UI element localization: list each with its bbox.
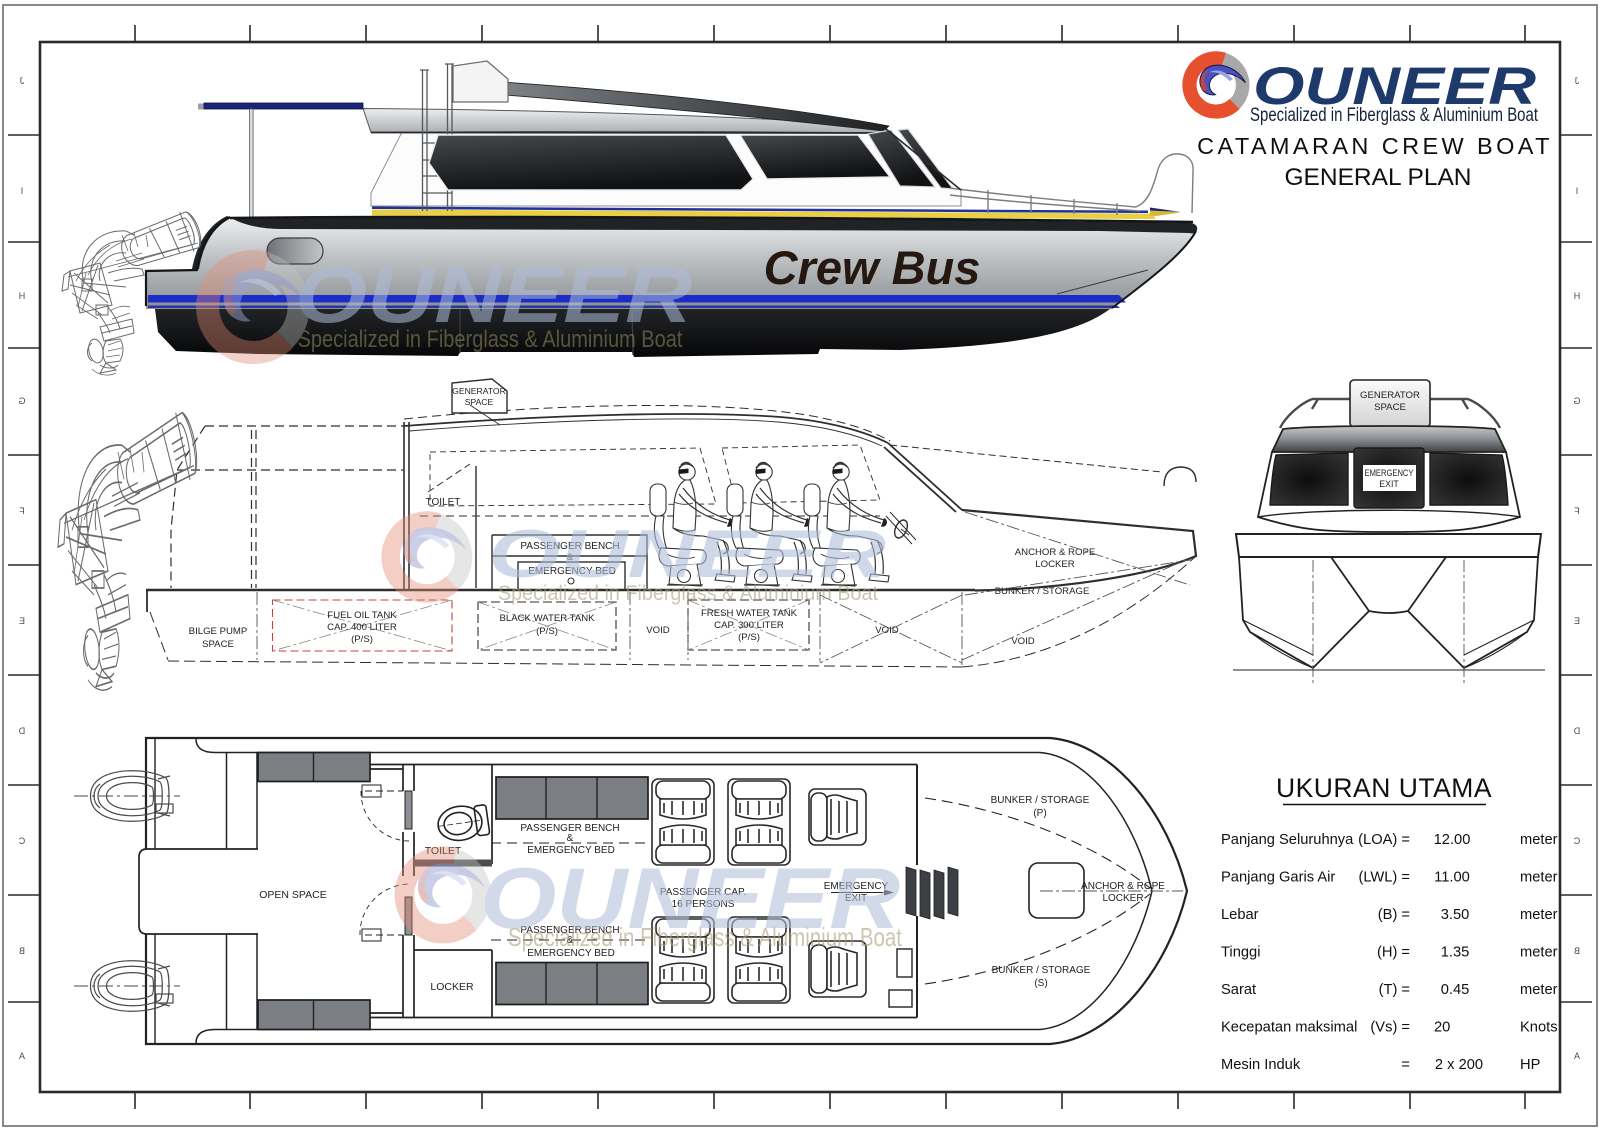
svg-text:Panjang Seluruhnya: Panjang Seluruhnya [1221, 832, 1354, 848]
svg-text:J: J [20, 76, 25, 86]
svg-text:F: F [1574, 506, 1580, 516]
svg-text:2 x 200: 2 x 200 [1435, 1057, 1483, 1073]
svg-text:=: = [1401, 1057, 1410, 1073]
svg-text:Crew Bus: Crew Bus [764, 241, 981, 294]
svg-text:(P/S): (P/S) [738, 632, 760, 643]
svg-text:CATAMARAN CREW BOAT: CATAMARAN CREW BOAT [1197, 133, 1553, 159]
svg-text:(LOA) =: (LOA) = [1358, 832, 1410, 848]
svg-text:VOID: VOID [646, 625, 670, 636]
svg-text:meter: meter [1520, 870, 1558, 886]
svg-text:D: D [18, 726, 25, 736]
svg-text:12.00: 12.00 [1434, 832, 1471, 848]
svg-text:GENERATOR: GENERATOR [452, 386, 506, 396]
svg-text:SPACE: SPACE [1374, 402, 1406, 413]
svg-text:SPACE: SPACE [202, 639, 234, 650]
svg-text:OUNEER: OUNEER [488, 516, 886, 592]
svg-text:meter: meter [1520, 982, 1558, 998]
svg-text:BUNKER / STORAGE: BUNKER / STORAGE [991, 795, 1090, 806]
svg-text:D: D [1573, 726, 1580, 736]
svg-text:BUNKER / STORAGE: BUNKER / STORAGE [995, 586, 1090, 597]
svg-text:J: J [1575, 76, 1580, 86]
svg-text:(H) =: (H) = [1377, 945, 1410, 961]
svg-text:E: E [19, 616, 25, 626]
svg-text:meter: meter [1520, 832, 1558, 848]
svg-text:GENERATOR: GENERATOR [1360, 390, 1420, 401]
svg-text:Specialized in Fiberglass & Al: Specialized in Fiberglass & Aluminium Bo… [508, 922, 903, 952]
svg-text:(LWL) =: (LWL) = [1358, 870, 1410, 886]
svg-text:B: B [19, 946, 25, 956]
svg-text:A: A [19, 1051, 25, 1061]
svg-text:ANCHOR & ROPE: ANCHOR & ROPE [1015, 547, 1096, 558]
svg-text:H: H [19, 291, 26, 301]
svg-text:Mesin Induk: Mesin Induk [1221, 1057, 1301, 1073]
svg-text:BUNKER / STORAGE: BUNKER / STORAGE [992, 965, 1091, 976]
svg-text:(Vs) =: (Vs) = [1370, 1020, 1410, 1036]
svg-text:Specialized in Fiberglass & Al: Specialized in Fiberglass & Aluminium Bo… [1250, 104, 1538, 126]
svg-text:(P): (P) [1033, 808, 1046, 819]
svg-text:0.45: 0.45 [1441, 982, 1470, 998]
svg-text:VOID: VOID [1011, 636, 1035, 647]
svg-text:Knots: Knots [1520, 1020, 1558, 1036]
svg-text:1.35: 1.35 [1441, 945, 1470, 961]
svg-text:A: A [1574, 1051, 1580, 1061]
svg-text:3.50: 3.50 [1441, 907, 1470, 923]
svg-text:G: G [1573, 396, 1580, 406]
svg-text:EXIT: EXIT [1379, 479, 1399, 489]
svg-text:meter: meter [1520, 907, 1558, 923]
svg-text:LOCKER: LOCKER [430, 981, 474, 993]
svg-text:(B) =: (B) = [1378, 907, 1410, 923]
svg-text:C: C [18, 836, 25, 846]
svg-text:Lebar: Lebar [1221, 907, 1259, 923]
svg-text:H: H [1574, 291, 1581, 301]
svg-text:OPEN SPACE: OPEN SPACE [259, 889, 327, 901]
svg-text:LOCKER: LOCKER [1035, 559, 1075, 570]
svg-text:Specialized in Fiberglass & Al: Specialized in Fiberglass & Aluminium Bo… [298, 326, 683, 353]
svg-text:meter: meter [1520, 945, 1558, 961]
svg-text:C: C [1573, 836, 1580, 846]
svg-text:F: F [19, 506, 25, 516]
svg-text:11.00: 11.00 [1434, 870, 1470, 886]
svg-text:E: E [1574, 616, 1580, 626]
svg-text:EMERGENCY: EMERGENCY [1365, 468, 1414, 478]
svg-text:I: I [1576, 186, 1579, 196]
svg-text:SPACE: SPACE [465, 397, 494, 407]
svg-text:Sarat: Sarat [1221, 982, 1256, 998]
svg-text:20: 20 [1434, 1020, 1450, 1036]
svg-text:CAP. 300 LITER: CAP. 300 LITER [714, 620, 784, 631]
svg-text:BLACK WATER TANK: BLACK WATER TANK [499, 613, 595, 624]
svg-text:BILGE PUMP: BILGE PUMP [189, 626, 248, 637]
svg-text:FUEL OIL TANK: FUEL OIL TANK [327, 610, 397, 621]
svg-text:ANCHOR & ROPE: ANCHOR & ROPE [1081, 881, 1165, 892]
svg-text:Tinggi: Tinggi [1221, 945, 1260, 961]
svg-text:HP: HP [1520, 1057, 1541, 1073]
svg-text:(P/S): (P/S) [536, 626, 558, 637]
svg-text:GENERAL PLAN: GENERAL PLAN [1285, 164, 1472, 191]
svg-text:FRESH WATER TANK: FRESH WATER TANK [701, 608, 798, 619]
svg-text:(T) =: (T) = [1379, 982, 1410, 998]
svg-text:Panjang Garis Air: Panjang Garis Air [1221, 870, 1335, 886]
svg-text:B: B [1574, 946, 1580, 956]
svg-text:Kecepatan maksimal: Kecepatan maksimal [1221, 1020, 1357, 1036]
svg-text:LOCKER: LOCKER [1102, 893, 1143, 904]
svg-text:(P/S): (P/S) [351, 634, 373, 645]
svg-text:(S): (S) [1034, 978, 1047, 989]
svg-text:G: G [18, 396, 25, 406]
svg-text:Specialized in Fiberglass & Al: Specialized in Fiberglass & Aluminium Bo… [498, 582, 878, 605]
svg-text:&: & [567, 833, 574, 844]
svg-text:CAP. 400 LITER: CAP. 400 LITER [327, 622, 397, 633]
svg-text:UKURAN UTAMA: UKURAN UTAMA [1276, 773, 1492, 803]
svg-text:I: I [21, 186, 24, 196]
